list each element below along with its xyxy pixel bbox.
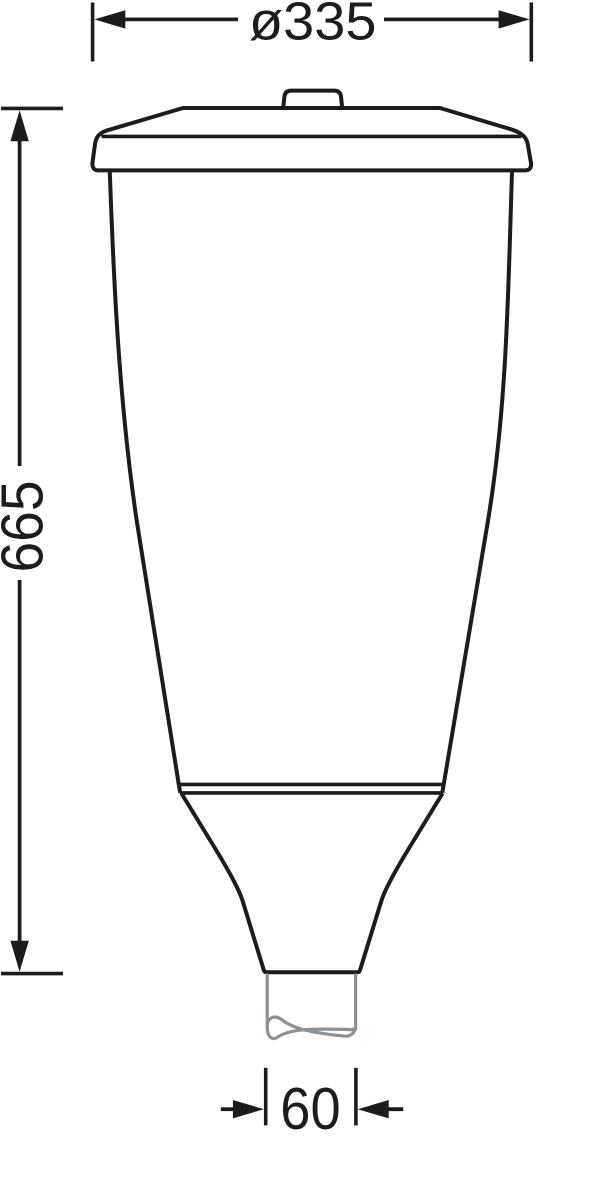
svg-text:665: 665 bbox=[0, 481, 56, 573]
svg-text:ø335: ø335 bbox=[249, 0, 377, 52]
svg-text:60: 60 bbox=[280, 1076, 340, 1142]
